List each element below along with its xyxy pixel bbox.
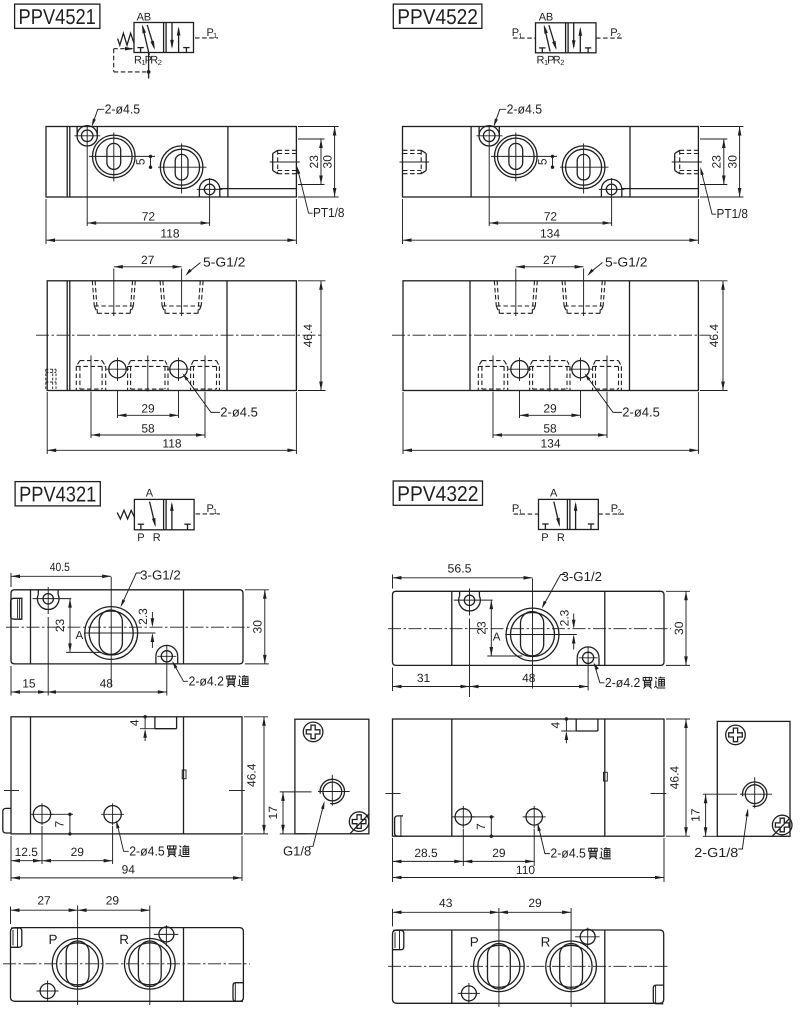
svg-text:15: 15 (22, 677, 36, 691)
svg-text:46.4: 46.4 (301, 324, 315, 348)
svg-text:PPV4321: PPV4321 (19, 482, 96, 506)
svg-text:2.3: 2.3 (136, 608, 150, 625)
svg-text:118: 118 (160, 227, 179, 241)
svg-text:72: 72 (142, 209, 156, 223)
svg-text:A: A (493, 631, 501, 643)
svg-text:72: 72 (544, 209, 558, 223)
svg-text:A: A (76, 630, 84, 642)
svg-text:7: 7 (53, 820, 67, 827)
svg-text:27: 27 (543, 253, 557, 267)
svg-text:5-G1/2: 5-G1/2 (203, 254, 246, 269)
svg-text:29: 29 (71, 845, 85, 859)
svg-text:P: P (137, 532, 144, 544)
svg-text:2-ø4.5: 2-ø4.5 (550, 846, 586, 861)
svg-text:30: 30 (320, 155, 334, 169)
svg-text:5: 5 (536, 158, 550, 165)
svg-text:27: 27 (141, 253, 155, 267)
svg-text:A: A (146, 488, 154, 500)
svg-text:R: R (541, 934, 551, 949)
svg-text:4: 4 (127, 719, 141, 726)
svg-text:2-ø4.2: 2-ø4.2 (189, 673, 225, 688)
svg-text:5-G1/2: 5-G1/2 (605, 254, 648, 269)
svg-text:2: 2 (560, 58, 564, 67)
svg-text:B: B (144, 11, 151, 23)
svg-text:23: 23 (307, 155, 321, 169)
svg-text:2: 2 (617, 507, 621, 516)
svg-text:12.5: 12.5 (15, 845, 39, 859)
svg-text:2.3: 2.3 (558, 609, 572, 626)
svg-text:56.5: 56.5 (448, 561, 472, 575)
svg-text:PPV4522: PPV4522 (397, 5, 478, 29)
svg-text:23: 23 (710, 155, 724, 169)
svg-text:PPV4322: PPV4322 (397, 482, 478, 506)
svg-text:94: 94 (122, 863, 136, 877)
svg-text:R: R (153, 532, 161, 544)
svg-text:29: 29 (528, 896, 542, 910)
svg-text:B: B (546, 11, 553, 23)
svg-text:2: 2 (158, 58, 162, 67)
svg-text:23: 23 (475, 621, 489, 635)
svg-text:G1/8: G1/8 (283, 844, 311, 859)
svg-text:2-ø4.5: 2-ø4.5 (105, 102, 141, 117)
svg-text:23: 23 (53, 619, 67, 633)
svg-text:1: 1 (213, 507, 217, 516)
svg-text:5: 5 (134, 158, 148, 165)
svg-text:29: 29 (106, 894, 120, 908)
svg-text:29: 29 (492, 846, 506, 860)
svg-text:2-ø4.2: 2-ø4.2 (605, 675, 641, 690)
svg-text:134: 134 (540, 227, 560, 241)
svg-text:R: R (119, 932, 129, 947)
svg-text:17: 17 (266, 806, 280, 820)
svg-text:P: P (470, 934, 479, 949)
svg-text:58: 58 (141, 421, 155, 435)
svg-text:46.4: 46.4 (668, 766, 682, 790)
svg-text:P: P (541, 532, 548, 544)
svg-text:3-G1/2: 3-G1/2 (562, 569, 603, 584)
svg-text:P: P (49, 932, 58, 947)
svg-text:58: 58 (543, 421, 557, 435)
svg-text:2-ø4.5: 2-ø4.5 (622, 404, 660, 419)
svg-text:110: 110 (516, 863, 535, 877)
svg-text:2-ø4.5: 2-ø4.5 (129, 843, 165, 858)
svg-text:7: 7 (474, 823, 488, 830)
svg-text:A: A (550, 488, 558, 500)
svg-text:1: 1 (213, 31, 217, 40)
svg-text:30: 30 (251, 620, 265, 634)
svg-text:30: 30 (672, 621, 686, 635)
svg-text:28.5: 28.5 (414, 846, 438, 860)
svg-text:48: 48 (522, 671, 536, 685)
svg-text:3-G1/2: 3-G1/2 (140, 568, 181, 583)
svg-text:2-G1/8: 2-G1/8 (694, 845, 738, 860)
svg-text:2-ø4.5: 2-ø4.5 (507, 102, 542, 117)
svg-text:134: 134 (540, 437, 560, 451)
svg-text:48: 48 (100, 677, 114, 691)
svg-text:30: 30 (725, 155, 739, 169)
svg-text:29: 29 (141, 402, 155, 416)
svg-text:4: 4 (549, 721, 563, 728)
svg-text:29: 29 (543, 402, 557, 416)
svg-text:PPV4521: PPV4521 (19, 5, 96, 29)
svg-text:1: 1 (518, 31, 522, 40)
svg-text:PT1/8: PT1/8 (717, 206, 749, 221)
svg-text:17: 17 (688, 808, 702, 822)
svg-text:31: 31 (417, 671, 431, 685)
svg-text:PT1/8: PT1/8 (313, 205, 345, 220)
svg-text:R: R (557, 532, 565, 544)
svg-text:43: 43 (439, 896, 453, 910)
svg-text:1: 1 (518, 507, 522, 516)
svg-text:27: 27 (37, 894, 51, 908)
svg-text:118: 118 (162, 437, 181, 451)
svg-text:2-ø4.5: 2-ø4.5 (220, 404, 258, 419)
svg-text:2: 2 (617, 31, 621, 40)
svg-text:46.4: 46.4 (244, 763, 258, 787)
svg-text:40.5: 40.5 (50, 560, 70, 574)
svg-text:46.4: 46.4 (707, 324, 721, 348)
